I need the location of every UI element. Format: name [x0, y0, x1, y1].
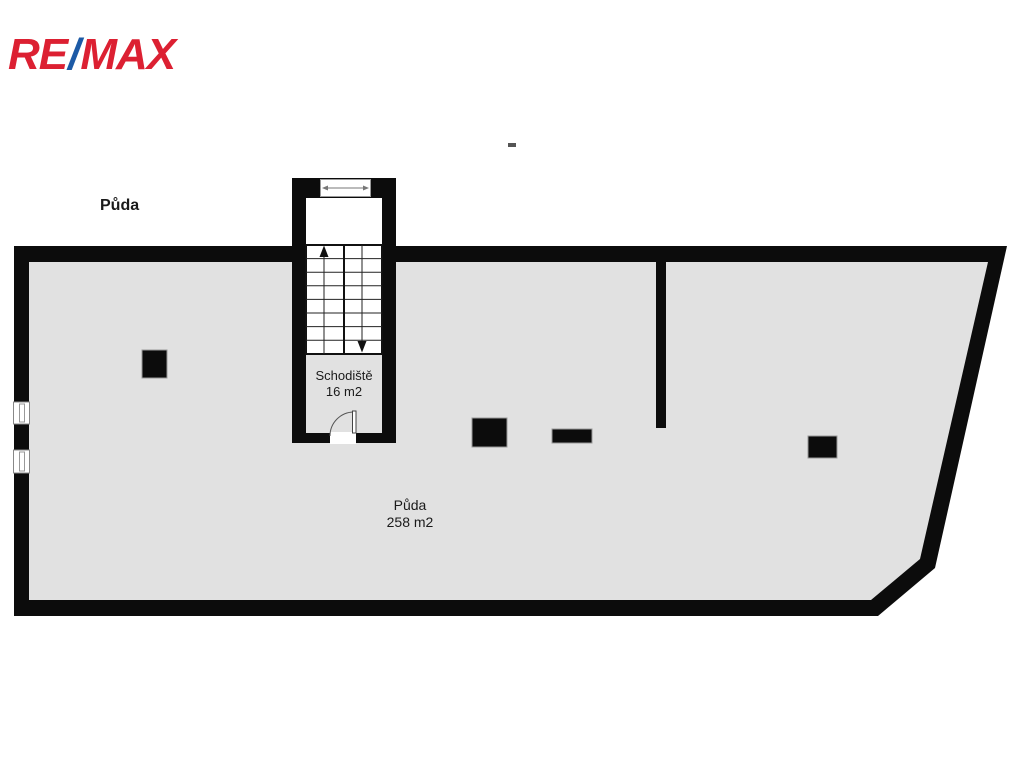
floorplan-page: RE/MAX	[0, 0, 1024, 768]
floorplan-canvas: Půda Schodiště 16 m2 Půda 258 m2	[0, 0, 1024, 768]
staircase-room-name: Schodiště	[315, 368, 372, 383]
staircase	[306, 245, 382, 354]
pillar-1	[142, 350, 167, 378]
attic-floor-area	[29, 262, 988, 600]
artifact-dash	[508, 143, 516, 147]
door-leaf	[353, 411, 357, 433]
interior-wall	[656, 262, 666, 428]
pillar-2	[472, 418, 507, 447]
door-opening	[330, 432, 356, 444]
stair-tower	[292, 178, 396, 444]
staircase-room-area: 16 m2	[326, 384, 362, 399]
tower-window	[321, 180, 371, 197]
pillar-3-bar	[552, 429, 592, 443]
window-sash	[20, 404, 25, 422]
window-left-2	[14, 450, 30, 473]
window-sash	[20, 452, 25, 471]
attic-room-name: Půda	[394, 497, 427, 513]
attic-room-area: 258 m2	[387, 514, 434, 530]
window-left-1	[14, 402, 30, 424]
pillar-4	[808, 436, 837, 458]
attic-title-label: Půda	[100, 197, 139, 214]
